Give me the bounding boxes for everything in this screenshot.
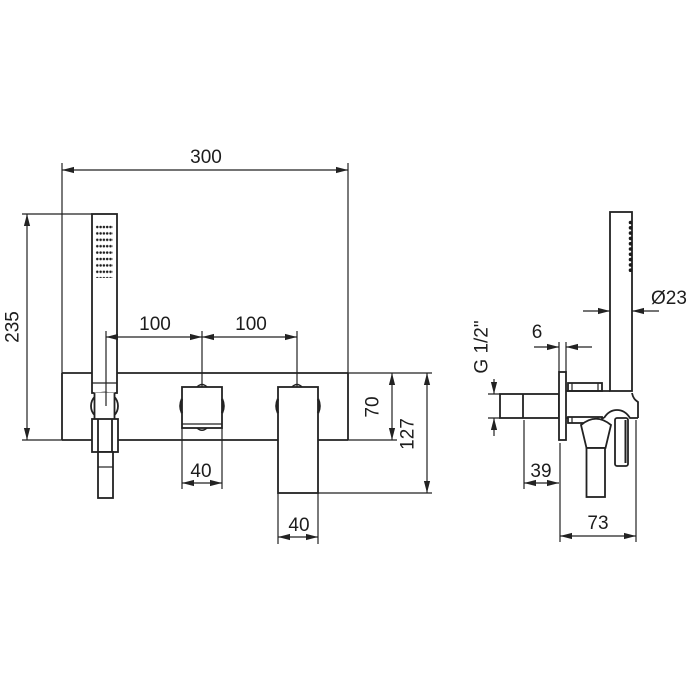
dim-label-70: 70 (363, 396, 384, 417)
dim-plate-thickness: 6 (532, 322, 592, 372)
technical-drawing-canvas: 300 235 100 100 40 40 (0, 0, 700, 700)
dim-connection-thread: G 1/2" (472, 320, 501, 436)
dim-label-100-right: 100 (235, 314, 267, 335)
dim-label-40-right: 40 (288, 515, 309, 536)
dim-label-g12: G 1/2" (472, 320, 493, 373)
dim-lever-width: 40 (278, 493, 318, 544)
wall-plate-side (559, 372, 566, 440)
hose-side (615, 418, 628, 466)
lever-right-front (276, 385, 319, 494)
spray-face-dots (96, 222, 114, 278)
handshower-side (610, 212, 632, 391)
dim-heights-right: 70 127 (318, 373, 432, 493)
handle-left-front (180, 385, 223, 431)
dim-label-6: 6 (532, 322, 543, 343)
drawing-svg: 300 235 100 100 40 40 (0, 0, 700, 700)
dim-label-39: 39 (530, 461, 551, 482)
dim-handle-width: 40 (182, 428, 222, 489)
shower-hose-front (98, 452, 113, 498)
lever-side (581, 419, 611, 497)
concealed-body-side (500, 394, 559, 418)
dim-label-300: 300 (190, 147, 222, 168)
dim-shower-diameter: Ø23 (583, 288, 687, 311)
dim-label-127: 127 (398, 418, 419, 450)
dim-label-40-left: 40 (190, 461, 211, 482)
side-view: Ø23 6 G 1/2" 39 73 (472, 212, 687, 542)
dim-label-d23: Ø23 (651, 288, 687, 309)
dim-shower-height: 235 (3, 214, 93, 440)
handshower-front (91, 214, 118, 498)
dim-label-100-left: 100 (139, 314, 171, 335)
dim-label-73: 73 (587, 513, 608, 534)
holder-bracket (92, 419, 118, 452)
dim-recess-depth: 39 (524, 420, 560, 542)
dim-label-235: 235 (3, 311, 24, 343)
front-view: 300 235 100 100 40 40 (3, 147, 433, 544)
